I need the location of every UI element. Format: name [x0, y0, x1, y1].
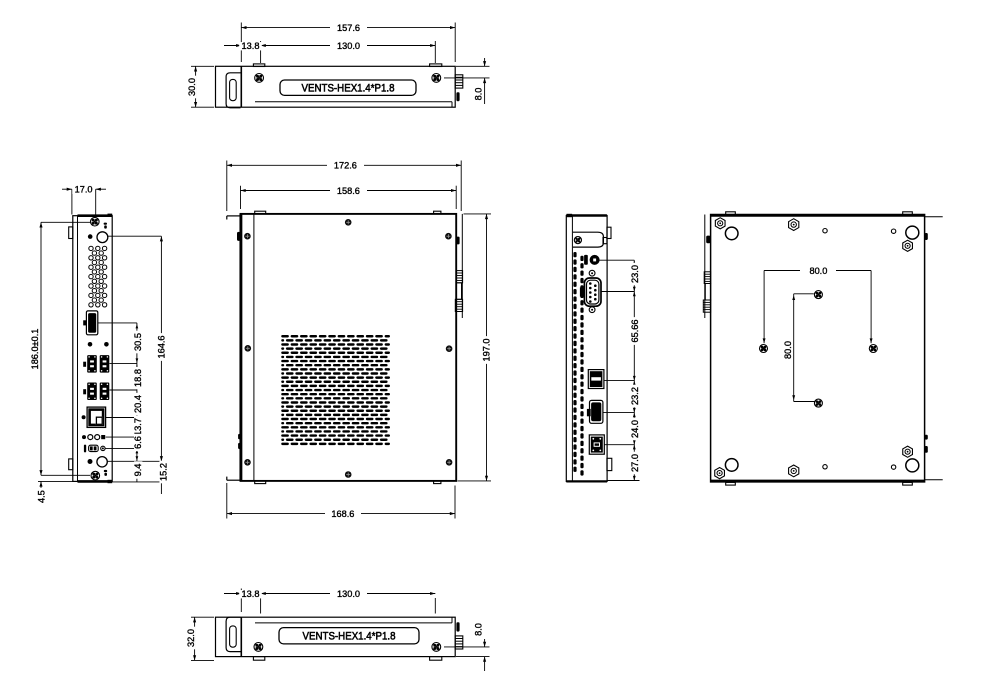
svg-text:158.6: 158.6: [337, 186, 360, 196]
svg-text:168.6: 168.6: [331, 509, 354, 519]
svg-text:8.0: 8.0: [473, 623, 483, 636]
svg-text:VENTS-HEX1.4*P1.8: VENTS-HEX1.4*P1.8: [302, 82, 395, 94]
svg-text:VENTS-HEX1.4*P1.8: VENTS-HEX1.4*P1.8: [303, 631, 396, 643]
svg-text:157.6: 157.6: [337, 23, 360, 33]
svg-text:6.6: 6.6: [133, 436, 143, 449]
svg-text:4.5: 4.5: [36, 490, 46, 503]
svg-text:17.0: 17.0: [75, 185, 93, 195]
svg-text:164.6: 164.6: [156, 336, 166, 359]
svg-text:197.0: 197.0: [481, 339, 491, 362]
svg-text:13.8: 13.8: [242, 41, 260, 51]
svg-text:80.0: 80.0: [809, 266, 827, 276]
svg-text:27.0: 27.0: [630, 454, 640, 472]
svg-text:13.7: 13.7: [133, 418, 143, 436]
svg-text:172.6: 172.6: [334, 161, 357, 171]
svg-text:9.4: 9.4: [133, 464, 143, 477]
svg-text:30.0: 30.0: [187, 78, 197, 96]
svg-text:23.0: 23.0: [630, 265, 640, 283]
svg-text:15.2: 15.2: [158, 463, 168, 481]
svg-text:8.0: 8.0: [473, 88, 483, 101]
svg-text:186.0±0.1: 186.0±0.1: [30, 329, 40, 370]
svg-text:65.66: 65.66: [630, 320, 640, 343]
svg-text:20.4: 20.4: [133, 395, 143, 413]
svg-text:30.5: 30.5: [133, 333, 143, 351]
svg-text:13.8: 13.8: [242, 589, 260, 599]
svg-text:130.0: 130.0: [337, 589, 360, 599]
svg-text:24.0: 24.0: [630, 420, 640, 438]
svg-text:18.8: 18.8: [133, 369, 143, 387]
svg-text:23.2: 23.2: [630, 387, 640, 405]
svg-text:32.0: 32.0: [186, 629, 196, 647]
svg-text:80.0: 80.0: [783, 341, 793, 359]
svg-text:130.0: 130.0: [337, 41, 360, 51]
